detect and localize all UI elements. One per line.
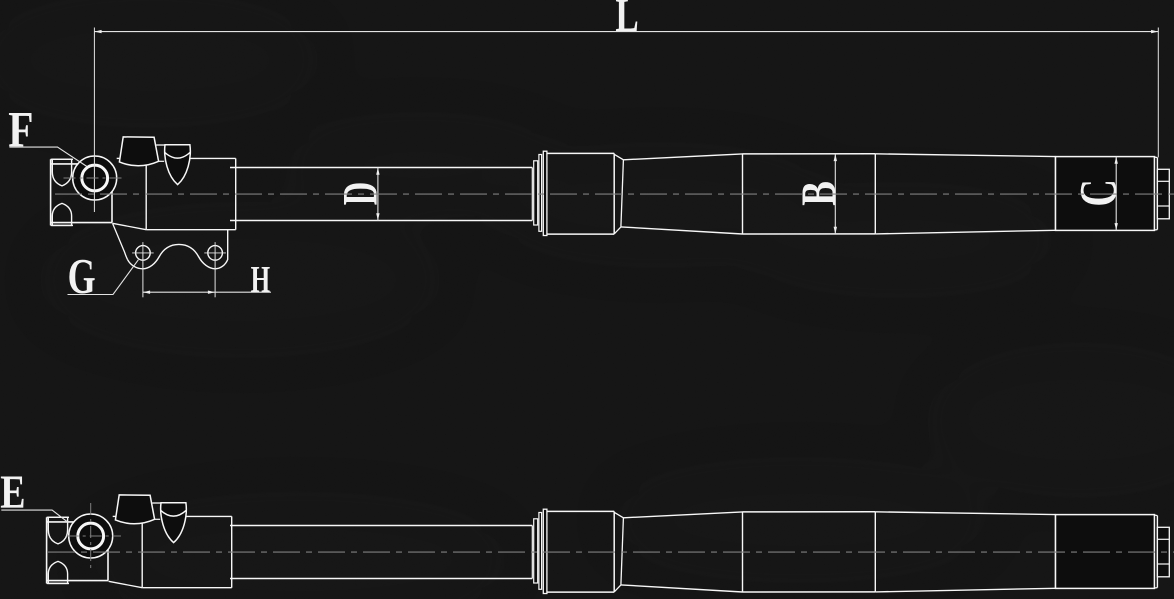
svg-text:D: D	[333, 182, 389, 205]
svg-text:F: F	[8, 102, 33, 158]
svg-text:B: B	[791, 181, 847, 206]
svg-text:E: E	[0, 466, 25, 519]
svg-text:L: L	[615, 0, 638, 43]
svg-text:G: G	[68, 249, 96, 304]
svg-text:C: C	[1069, 179, 1128, 207]
svg-text:H: H	[251, 258, 271, 300]
